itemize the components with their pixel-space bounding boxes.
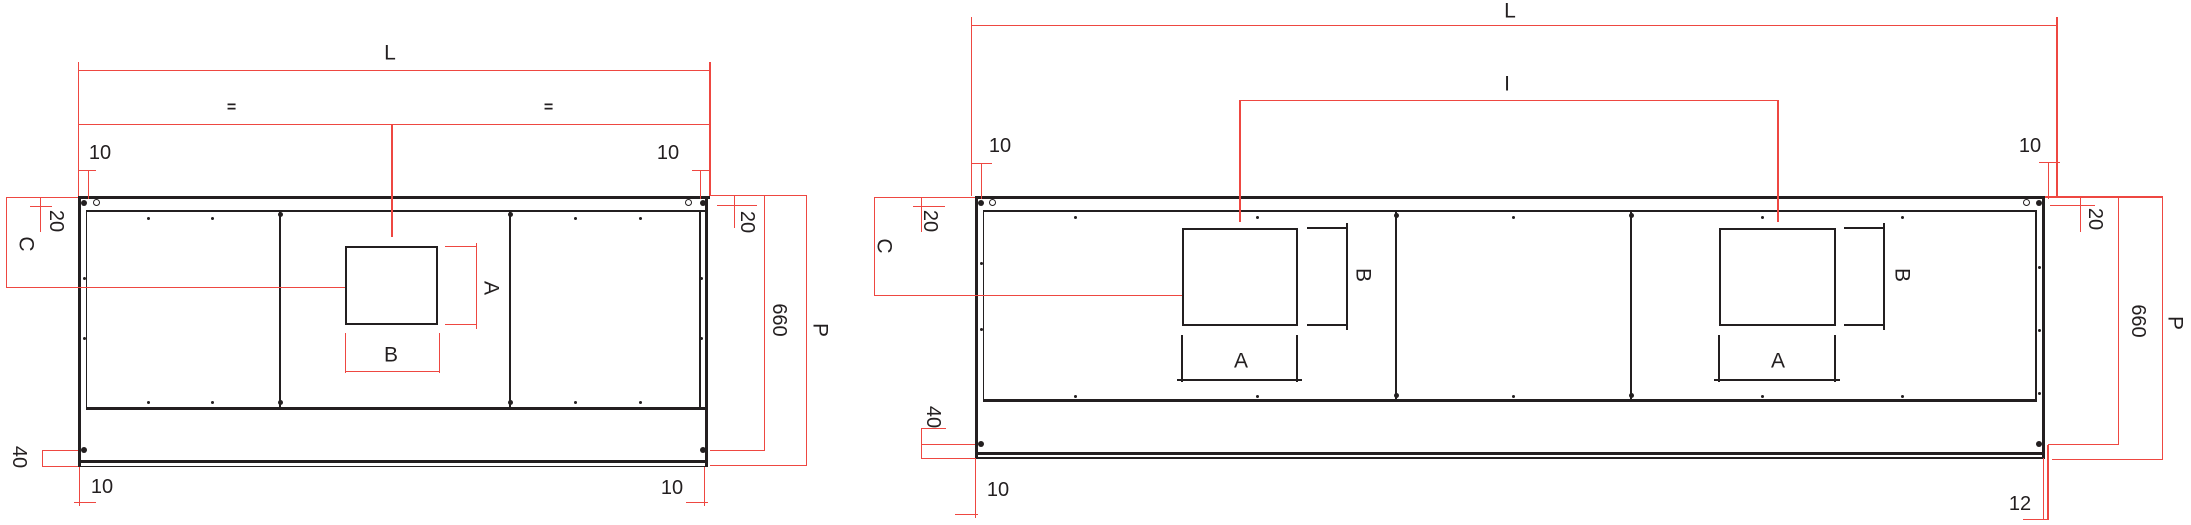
extension-line: [1307, 227, 1348, 229]
dim-line-b2: [1883, 223, 1885, 330]
extension-line: [975, 458, 976, 518]
dim-label-b2: B: [1892, 268, 1913, 282]
screw-dot: [2038, 392, 2041, 395]
screw-dot: [1074, 395, 1077, 398]
extension-line: [2048, 444, 2118, 445]
extension-line: [1718, 335, 1720, 382]
panel-top-edge: [975, 196, 2045, 199]
bolt: [978, 200, 984, 206]
dim-line-10-bl: [955, 514, 978, 515]
dim-line-length: [971, 25, 2057, 26]
extension-line: [1834, 335, 1836, 382]
bolt: [1629, 393, 1634, 398]
dim-label-a1: A: [1234, 351, 1248, 372]
extension-line: [2048, 162, 2049, 199]
inner-bottom-line: [983, 399, 2037, 402]
screw-dot: [1901, 395, 1904, 398]
extension-line: [1296, 335, 1298, 382]
bolt: [1394, 213, 1399, 218]
leader-line: [1239, 100, 1240, 222]
screw-dot: [1074, 216, 1077, 219]
dim-line-a2: [1714, 379, 1840, 381]
screw-dot: [1761, 216, 1764, 219]
screw-dot: [2038, 266, 2041, 269]
divider-2: [1630, 210, 1632, 400]
screw-dot: [1256, 395, 1259, 398]
screw-dot: [1761, 395, 1764, 398]
divider-1: [1395, 210, 1397, 400]
extension-line: [1181, 335, 1183, 382]
extension-line: [1844, 227, 1885, 229]
panel-left-edge: [975, 196, 978, 458]
dim-label-40: 40: [923, 406, 943, 428]
extension-line: [2047, 445, 2048, 520]
extension-line: [2045, 196, 2162, 197]
extension-line: [1307, 324, 1348, 326]
dim-label-10-top-left: 10: [989, 136, 1011, 156]
bolt: [1394, 393, 1399, 398]
extension-line: [921, 458, 975, 459]
dim-label-length: L: [1504, 1, 1516, 22]
dim-label-a2: A: [1771, 351, 1785, 372]
panel-opening-1: [1182, 228, 1298, 326]
screw-dot: [1512, 216, 1515, 219]
bolt: [1629, 213, 1634, 218]
dim-line-spacing: [1240, 100, 1778, 101]
dim-label-p: P: [2165, 316, 2186, 330]
extension-line: [921, 444, 975, 445]
bolt: [2036, 200, 2042, 206]
dim-label-c: C: [874, 238, 895, 253]
screw-dot: [1256, 216, 1259, 219]
extension-line: [971, 17, 972, 196]
screw-dot: [2038, 329, 2041, 332]
extension-line: [2052, 459, 2162, 460]
extension-line: [2080, 196, 2081, 232]
dim-label-12-bottom-right: 12: [2009, 494, 2031, 514]
inner-right-line: [2035, 210, 2037, 400]
extension-line: [2043, 458, 2044, 520]
bolt: [2036, 441, 2042, 447]
dim-line-660: [2118, 196, 2119, 445]
screw-dot: [980, 262, 983, 265]
extension-line: [874, 197, 975, 198]
dim-line-12-br: [2023, 519, 2048, 520]
panel-bottom-edge: [975, 452, 2045, 455]
dim-label-20-left: 20: [920, 210, 940, 232]
dim-line-20-left: [913, 206, 945, 207]
top-rail-line: [983, 210, 2037, 212]
extension-line: [981, 163, 982, 199]
panel-bottom-trim: [975, 457, 2045, 459]
dim-line-a1: [1177, 379, 1302, 381]
dim-label-spacing: I: [1504, 74, 1510, 95]
dim-label-b1: B: [1353, 268, 1374, 282]
dim-label-20-right: 20: [2085, 208, 2105, 230]
right-view-drawing: L I 10 10 20 C 20 B A B A 660 P 40 10 12: [0, 0, 2191, 525]
screw-dot: [1512, 395, 1515, 398]
dim-line-20-right: [2050, 205, 2095, 206]
inner-left-line: [983, 210, 985, 400]
extension-line: [1844, 324, 1885, 326]
dim-label-660: 660: [2128, 304, 2148, 337]
screw-ring: [2023, 199, 2030, 206]
screw-dot: [980, 328, 983, 331]
dim-label-10-top-right: 10: [2019, 136, 2041, 156]
dim-line-10-tr: [2039, 162, 2060, 163]
screw-dot: [1901, 216, 1904, 219]
screw-ring: [989, 199, 996, 206]
technical-drawing-sheet: L = = 10 10 20 C 20 A B 660 P 40 10 10: [0, 0, 2191, 525]
leader-line: [1777, 100, 1778, 222]
panel-opening-2: [1719, 228, 1836, 326]
c-leader-horizontal: [874, 295, 1182, 296]
panel-right-edge: [2042, 196, 2045, 458]
extension-line: [2056, 17, 2057, 196]
dim-label-10-bottom-left: 10: [987, 480, 1009, 500]
dim-line-b1: [1346, 223, 1348, 330]
bolt: [978, 441, 984, 447]
